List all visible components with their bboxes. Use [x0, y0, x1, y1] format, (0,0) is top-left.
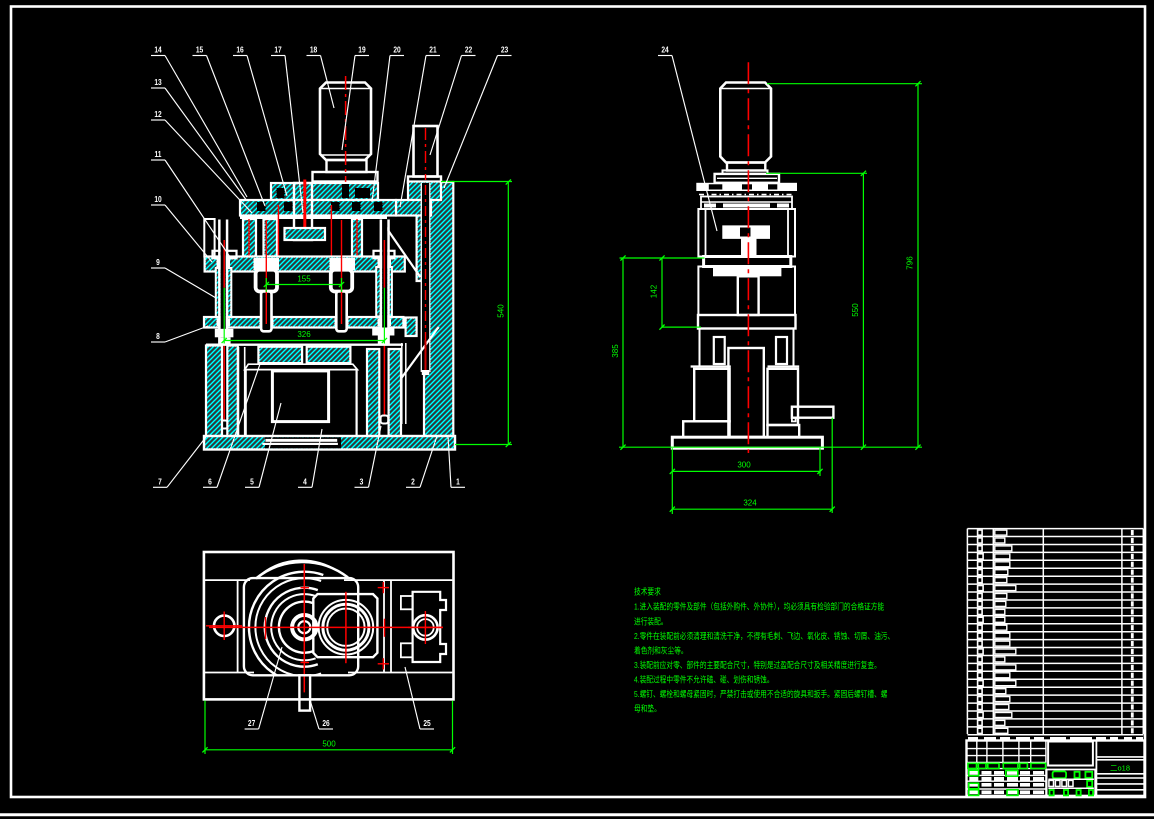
svg-text:母和垫。: 母和垫。	[634, 703, 661, 714]
svg-text:3: 3	[360, 477, 364, 487]
svg-text:26: 26	[322, 718, 329, 728]
svg-text:1: 1	[456, 477, 460, 487]
svg-text:23: 23	[501, 45, 508, 55]
svg-text:25: 25	[423, 718, 430, 728]
svg-text:进行装配。: 进行装配。	[634, 616, 668, 627]
svg-text:22: 22	[465, 45, 472, 55]
svg-text:技术要求: 技术要求	[634, 586, 661, 597]
svg-text:9: 9	[156, 257, 160, 267]
svg-text:4: 4	[303, 477, 307, 487]
svg-text:17: 17	[274, 45, 281, 55]
svg-text:500: 500	[322, 740, 336, 749]
svg-text:14: 14	[154, 45, 161, 55]
svg-text:796: 796	[906, 256, 915, 270]
svg-text:1.进入装配的零件及部件（包括外购件、外协件），均必须具有检: 1.进入装配的零件及部件（包括外购件、外协件），均必须具有检验部门的合格证方能	[634, 601, 884, 612]
svg-text:18: 18	[310, 45, 317, 55]
svg-text:300: 300	[737, 461, 751, 470]
svg-text:二o18: 二o18	[1110, 764, 1130, 773]
svg-text:2: 2	[411, 477, 415, 487]
svg-text:326: 326	[297, 330, 311, 339]
svg-text:385: 385	[611, 344, 620, 358]
svg-text:550: 550	[851, 303, 860, 317]
svg-text:540: 540	[497, 304, 506, 318]
svg-text:着色剂和灰尘等。: 着色剂和灰尘等。	[634, 645, 688, 656]
svg-text:6: 6	[208, 477, 212, 487]
svg-text:13: 13	[154, 77, 161, 87]
svg-text:2.零件在装配前必须清理和清洗干净，不得有毛刺、飞边、氧化皮: 2.零件在装配前必须清理和清洗干净，不得有毛刺、飞边、氧化皮、锈蚀、切屑、油污、	[634, 630, 894, 641]
svg-text:11: 11	[155, 149, 162, 159]
svg-text:5: 5	[250, 477, 254, 487]
svg-text:15: 15	[196, 45, 203, 55]
svg-text:5.螺钉、螺栓和螺母紧固时，严禁打击或使用不合适的旋具和扳手: 5.螺钉、螺栓和螺母紧固时，严禁打击或使用不合适的旋具和扳手。紧固后螺钉槽、螺	[634, 688, 888, 699]
svg-text:4.装配过程中零件不允许磕、碰、划伤和锈蚀。: 4.装配过程中零件不允许磕、碰、划伤和锈蚀。	[634, 674, 774, 685]
svg-text:142: 142	[650, 284, 659, 298]
svg-text:10: 10	[154, 194, 161, 204]
svg-text:3.装配前应对零、部件的主要配合尺寸，特别是过盈配合尺寸及相: 3.装配前应对零、部件的主要配合尺寸，特别是过盈配合尺寸及相关精度进行复查。	[634, 659, 881, 670]
svg-text:7: 7	[158, 477, 162, 487]
svg-text:8: 8	[156, 331, 160, 341]
svg-text:19: 19	[358, 45, 365, 55]
svg-text:24: 24	[661, 45, 668, 55]
svg-text:155: 155	[297, 275, 311, 284]
svg-text:12: 12	[154, 109, 161, 119]
svg-text:324: 324	[743, 499, 757, 508]
svg-text:27: 27	[248, 718, 255, 728]
svg-text:20: 20	[393, 45, 400, 55]
svg-text:21: 21	[429, 45, 436, 55]
svg-text:16: 16	[236, 45, 243, 55]
